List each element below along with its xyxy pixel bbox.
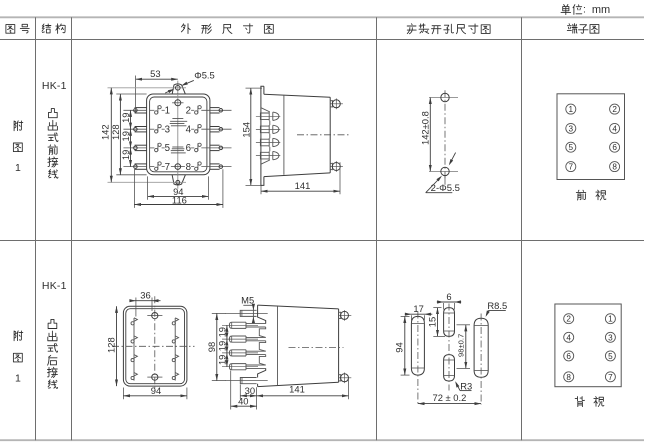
svg-text::: : (583, 4, 586, 16)
svg-text:141: 141 (295, 180, 311, 191)
svg-text:7: 7 (608, 373, 613, 382)
svg-text:19: 19 (217, 341, 228, 351)
svg-text:15: 15 (426, 317, 437, 327)
svg-text:4: 4 (566, 333, 571, 342)
svg-text:6: 6 (186, 143, 191, 154)
svg-text:141: 141 (289, 383, 305, 394)
svg-text:1: 1 (15, 373, 21, 385)
svg-text:5: 5 (608, 352, 613, 361)
svg-text:19: 19 (120, 150, 131, 160)
svg-text:4: 4 (186, 125, 192, 136)
svg-text:142±0.8: 142±0.8 (419, 111, 430, 145)
svg-text:19: 19 (120, 131, 131, 141)
svg-text:6: 6 (446, 291, 451, 302)
svg-text:6: 6 (612, 143, 617, 152)
svg-text:1: 1 (165, 106, 170, 117)
svg-text:19: 19 (120, 112, 131, 122)
svg-text:116: 116 (172, 194, 187, 205)
svg-text:8: 8 (186, 162, 191, 173)
svg-text:8: 8 (566, 373, 571, 382)
svg-text:5: 5 (569, 143, 574, 152)
svg-text:HK-1: HK-1 (42, 280, 67, 292)
svg-text:142: 142 (99, 124, 110, 140)
svg-text:Φ5.5: Φ5.5 (194, 69, 215, 80)
svg-text:154: 154 (240, 122, 251, 138)
svg-text:36: 36 (140, 290, 150, 301)
svg-text:128: 128 (105, 337, 116, 353)
svg-text:HK-1: HK-1 (42, 80, 67, 92)
svg-text:7: 7 (165, 162, 170, 173)
svg-text:3: 3 (608, 333, 613, 342)
svg-text:19: 19 (217, 327, 228, 337)
svg-text:2: 2 (186, 106, 191, 117)
svg-text:1: 1 (608, 315, 613, 324)
svg-text:1: 1 (15, 162, 21, 174)
svg-text:98: 98 (206, 342, 217, 352)
svg-text:4: 4 (612, 124, 617, 133)
svg-text:19: 19 (217, 355, 228, 365)
svg-text:17: 17 (413, 303, 423, 314)
svg-text:M5: M5 (241, 294, 254, 305)
svg-text:1: 1 (569, 105, 574, 114)
svg-text:53: 53 (150, 68, 160, 79)
svg-text:30: 30 (245, 385, 255, 396)
svg-text:72 ± 0.2: 72 ± 0.2 (432, 392, 466, 403)
svg-text:7: 7 (569, 163, 574, 172)
svg-text:3: 3 (569, 124, 574, 133)
svg-text:94: 94 (151, 385, 161, 396)
svg-text:94: 94 (394, 342, 405, 352)
svg-text:3: 3 (165, 125, 170, 136)
svg-text:6: 6 (566, 352, 571, 361)
svg-text:R3: R3 (460, 380, 472, 391)
svg-text:40: 40 (238, 396, 248, 407)
svg-text:5: 5 (165, 143, 170, 154)
svg-text:2-Φ5.5: 2-Φ5.5 (431, 183, 460, 194)
svg-text:8: 8 (612, 163, 617, 172)
svg-text:R8.5: R8.5 (487, 300, 507, 311)
svg-text:2: 2 (612, 105, 617, 114)
svg-text:98±0.7: 98±0.7 (457, 334, 466, 357)
svg-text:mm: mm (592, 4, 610, 16)
svg-text:2: 2 (566, 315, 571, 324)
